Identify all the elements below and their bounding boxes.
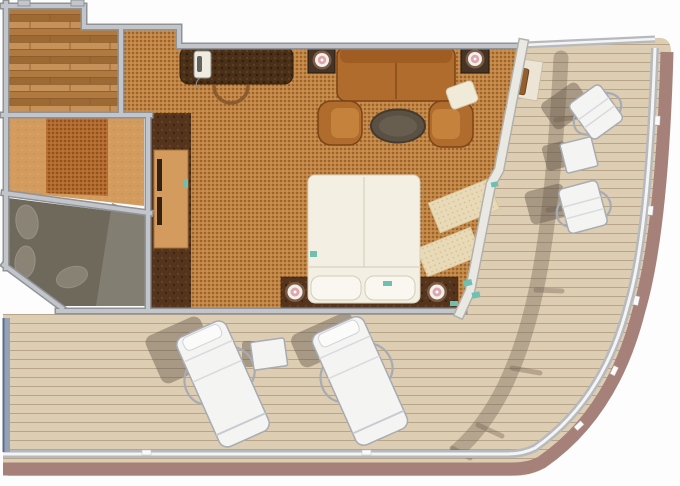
pillow xyxy=(365,276,415,300)
dressing-area-carpet xyxy=(46,118,108,196)
nightstand-lamp xyxy=(427,282,447,302)
entry-door-jamb xyxy=(71,0,84,6)
coffee-table xyxy=(371,110,425,143)
table-lamp xyxy=(466,50,485,69)
wardrobe-cabinet xyxy=(154,150,188,248)
pillow xyxy=(311,276,361,300)
floor-plan-drawing xyxy=(0,0,680,486)
nightstand-lamp xyxy=(285,282,305,302)
bed-accent xyxy=(310,251,317,257)
cruise-suite-floor-plan xyxy=(0,0,680,486)
lounger-side-table xyxy=(250,338,288,370)
stanchion-shadow xyxy=(536,290,562,291)
armchair xyxy=(429,101,473,147)
table-lamp xyxy=(313,51,332,70)
bed-accent xyxy=(383,281,392,286)
armchair xyxy=(318,101,362,145)
entry-door-jamb xyxy=(18,0,30,6)
